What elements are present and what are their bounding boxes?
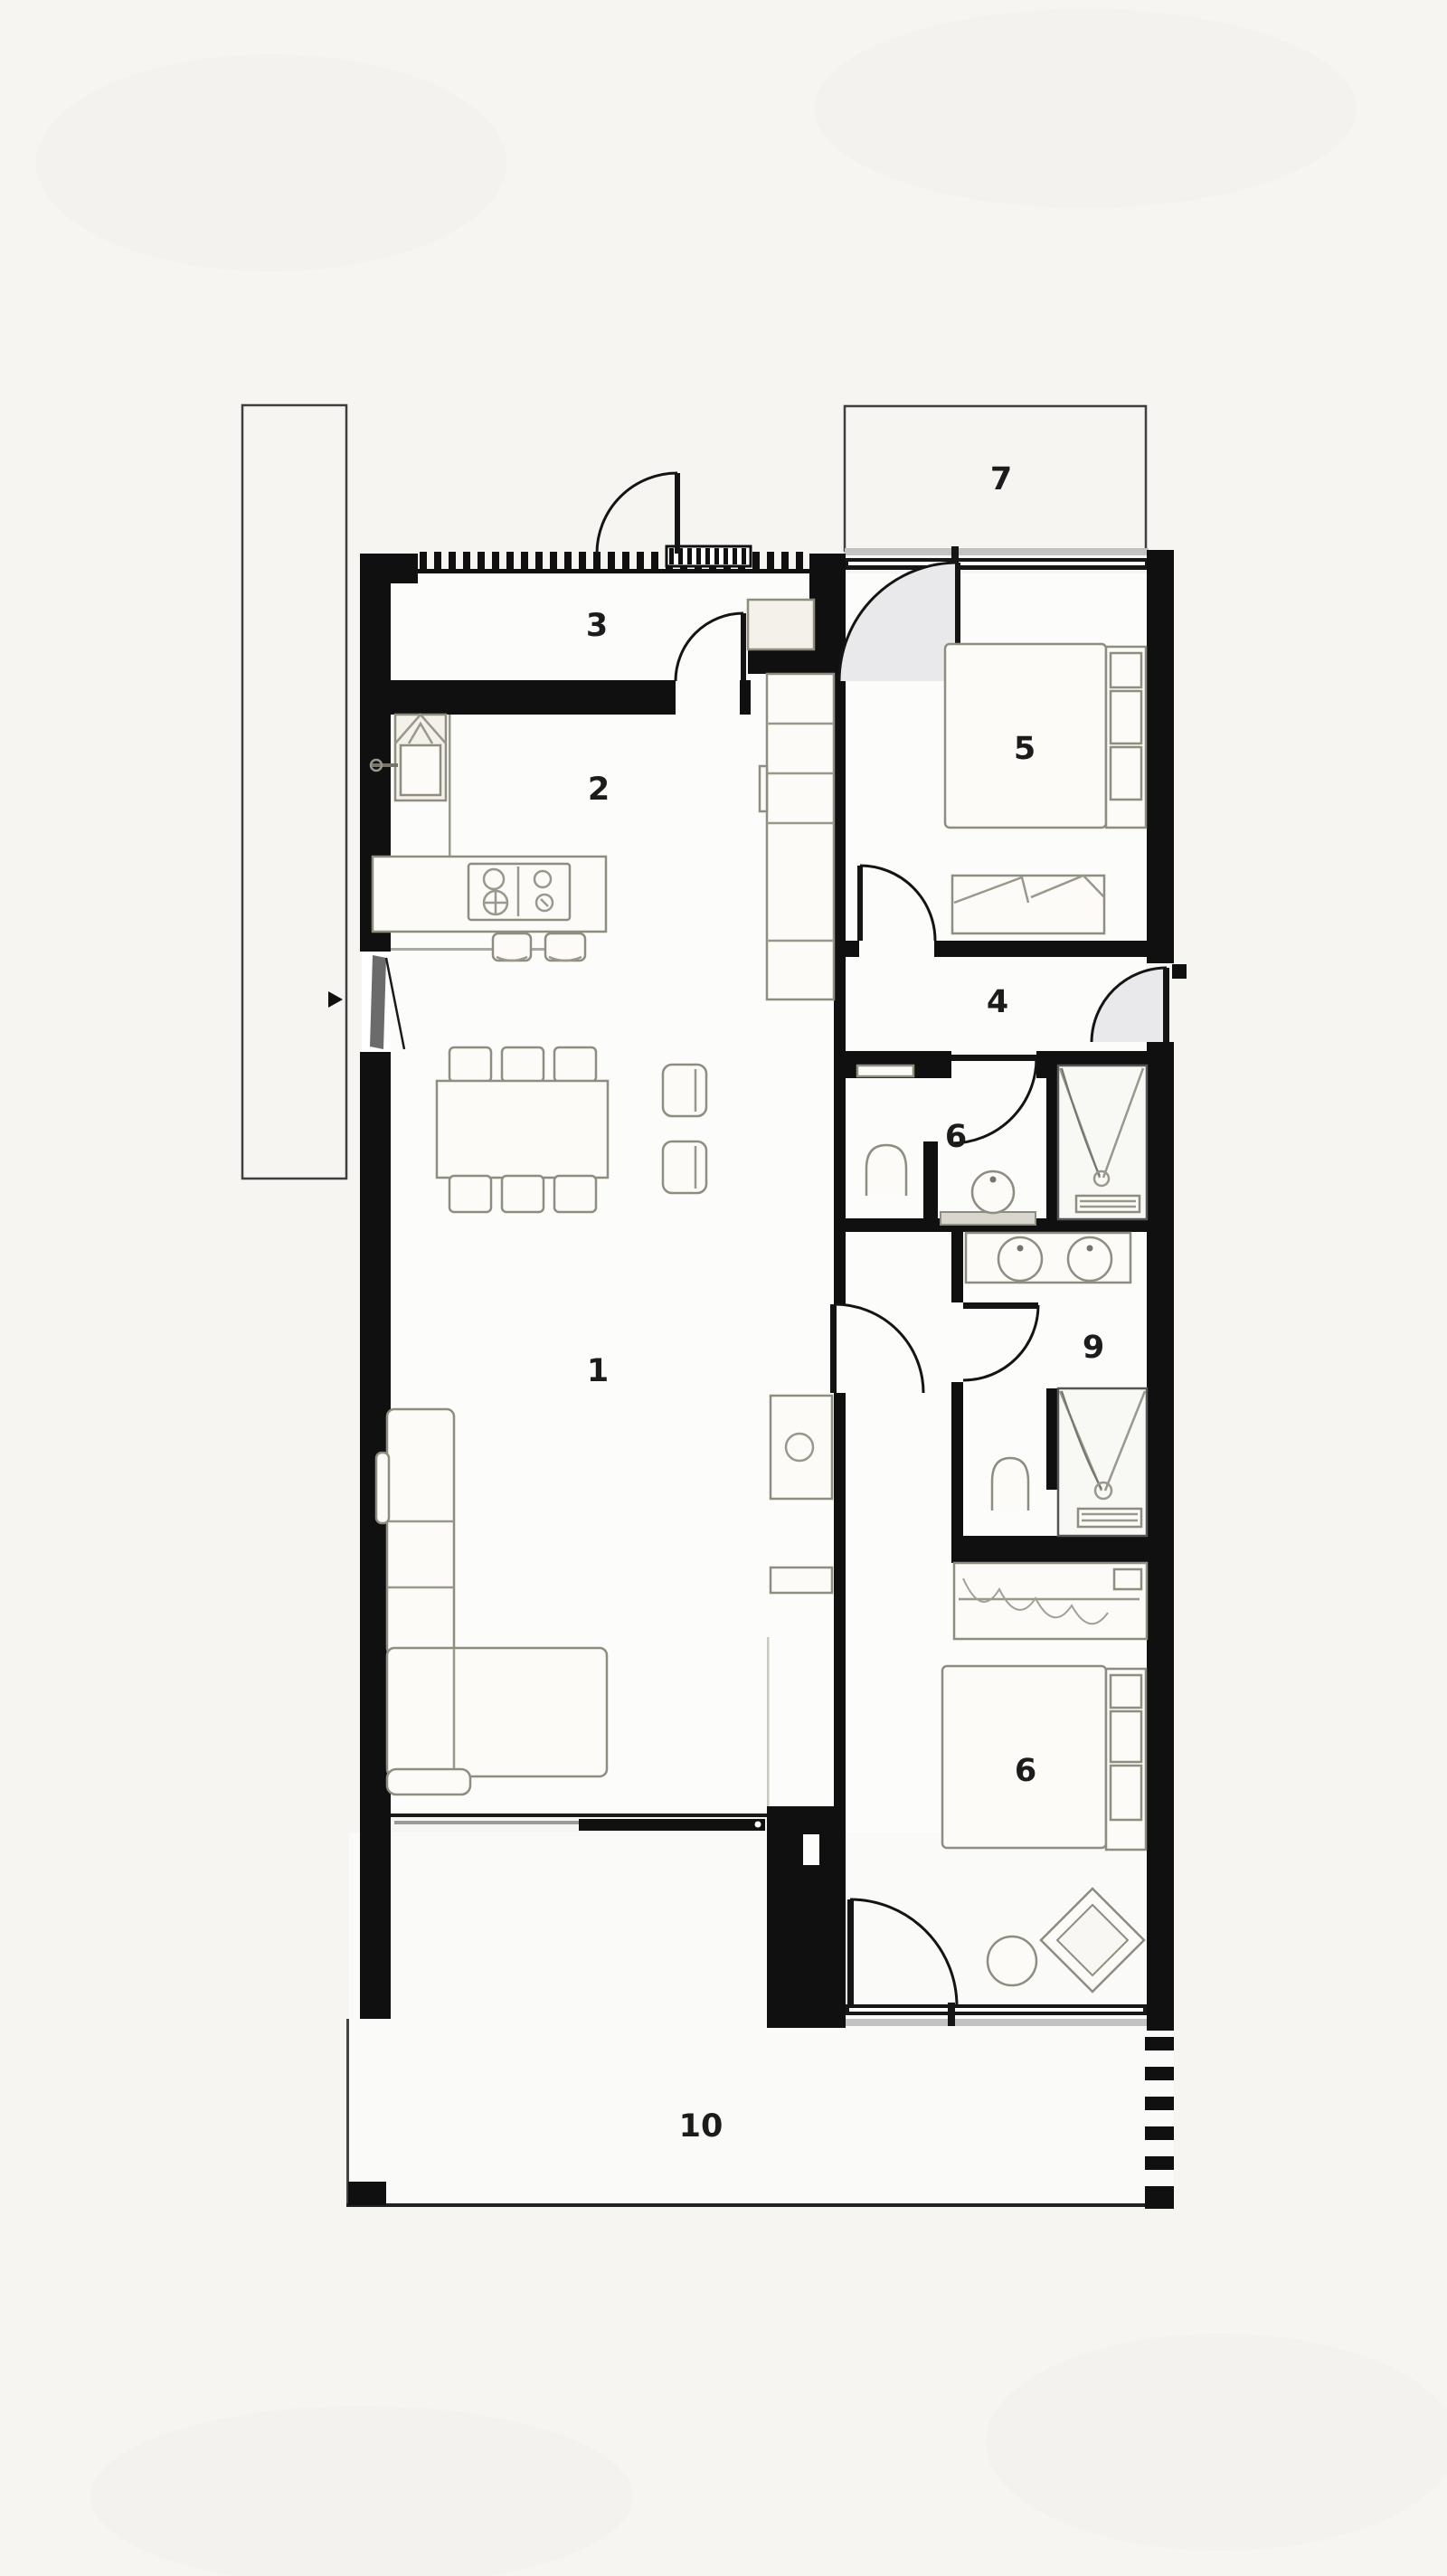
ensuite-wall-a xyxy=(951,1232,963,1302)
entry-kitchen-wall-stub xyxy=(740,680,751,715)
basin-counter-6 xyxy=(941,1212,1036,1225)
label-bathroom: 6 xyxy=(945,1119,967,1155)
terrace-bottom-edge xyxy=(346,2203,1174,2207)
low-cabinet xyxy=(771,1567,832,1593)
south-wall-notch xyxy=(803,1834,819,1865)
floor-plan: 1 2 3 4 5 6 7 9 6 10 xyxy=(0,0,1447,2576)
wardrobe xyxy=(954,1563,1147,1639)
shower9-partition xyxy=(1046,1388,1057,1490)
label-entry-hall: 3 xyxy=(586,608,608,644)
bed-front-headboard xyxy=(1106,647,1146,828)
right-wall-upper xyxy=(1147,550,1174,963)
top-left-wall-cap xyxy=(360,554,418,583)
terrace-floor xyxy=(349,1833,1174,2203)
entry-arrow-icon xyxy=(328,991,343,1008)
north-glazing xyxy=(845,546,1149,570)
column-line xyxy=(767,1637,770,1806)
dining-set xyxy=(437,1047,608,1212)
counter-edge xyxy=(449,715,451,857)
label-terrace: 10 xyxy=(679,2108,723,2145)
label-ensuite: 9 xyxy=(1083,1330,1104,1366)
bath-partition xyxy=(923,1141,938,1218)
shower-9 xyxy=(1058,1388,1147,1536)
top-slatted-wall xyxy=(418,546,809,573)
shower-6 xyxy=(1058,1065,1147,1219)
right-wall-lower xyxy=(1147,1042,1174,2031)
towel-shelf xyxy=(857,1065,913,1076)
central-wall-upper xyxy=(834,674,846,1304)
side-desk xyxy=(771,1396,832,1499)
entry-kitchen-wall xyxy=(391,680,676,715)
kitchen-tall-cabinets xyxy=(760,674,834,999)
page-background: 1 2 3 4 5 6 7 9 6 10 xyxy=(0,0,1447,2576)
label-living-room: 1 xyxy=(587,1353,609,1389)
entry-corner-wall-h xyxy=(748,647,846,674)
bed5-hall-wall-a xyxy=(846,941,859,957)
label-kitchen: 2 xyxy=(588,772,610,808)
toilet-9 xyxy=(992,1458,1028,1511)
south-glazing xyxy=(846,2003,1147,2026)
bed-back-headboard xyxy=(1106,1669,1146,1850)
side-yard-outline xyxy=(242,405,346,1179)
ensuite-wardrobe-wall xyxy=(951,1536,1147,1563)
entry-door-leaf xyxy=(370,955,386,1049)
dining-table xyxy=(437,1081,608,1178)
door-patio-exterior xyxy=(597,473,680,554)
central-wall-lower xyxy=(834,1393,846,1806)
sliding-door xyxy=(391,1814,767,1831)
entry-cabinet xyxy=(748,600,814,649)
ensuite-wall-b xyxy=(951,1382,963,1536)
toilet-6 xyxy=(866,1145,906,1196)
label-bedroom-back: 6 xyxy=(1015,1753,1036,1789)
label-front-patio: 7 xyxy=(990,461,1012,497)
label-hallway: 4 xyxy=(987,984,1008,1020)
double-vanity xyxy=(966,1233,1130,1283)
shower6-partition xyxy=(1046,1065,1057,1218)
bed5-hall-wall-b xyxy=(934,941,1147,957)
right-door-hinge-stub xyxy=(1172,964,1187,979)
terrace-corner-block xyxy=(348,2182,386,2205)
kitchen-island xyxy=(373,857,606,932)
entry-threshold-line xyxy=(391,948,559,951)
label-bedroom-front: 5 xyxy=(1014,731,1036,767)
terrace-left-edge xyxy=(346,2019,349,2205)
bed-front-bench xyxy=(952,876,1104,933)
pouf xyxy=(988,1937,1036,1985)
